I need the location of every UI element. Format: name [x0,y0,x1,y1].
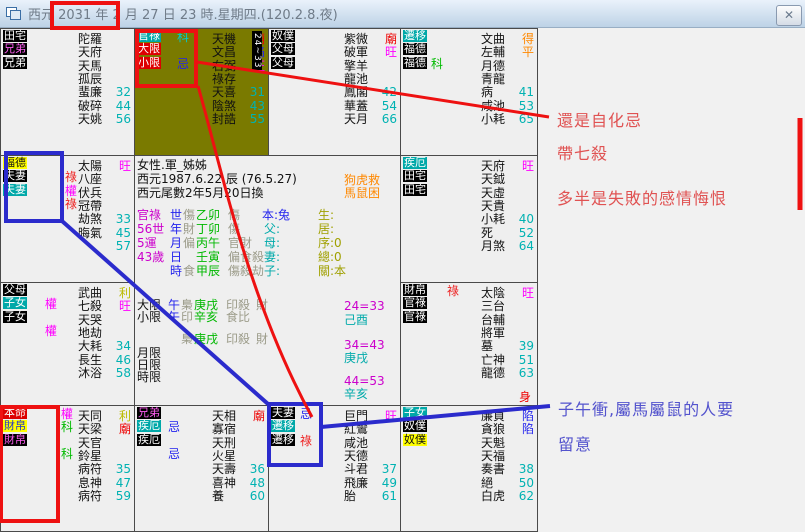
center-text-run: 庚戌 [194,333,218,346]
star-age-number: 56 [116,113,131,126]
star-name: 天喜 [212,86,236,99]
hua-mark-祿: 祿 [300,435,312,447]
palace-label: 官祿 [403,311,427,323]
star-row: 破軍旺 [344,46,397,59]
star-row: 咸池 [344,437,397,450]
title-bar: 西元 2031 年 2 月 27 日 23 時.星期四.(120.2.8.夜) … [0,0,805,28]
center-text-run: 辛亥 [344,388,368,401]
star-row: 火星 [212,450,265,463]
palace-label: 疾厄 [137,434,161,446]
star-name: 左輔 [481,46,505,59]
star-row: 天府 [78,46,131,59]
star-row: 武曲利 [78,287,131,300]
center-text-run: 序:0 [318,237,342,250]
palace-qianyi-top-right[interactable]: 遷移福德福德科文曲得左輔平月德青龍病41咸池53小耗65 [400,28,538,156]
center-text-run: 月 [170,237,182,250]
palace-label: 夫妻 [3,170,27,182]
star-row: 天貴 [481,200,534,213]
astrology-app-window: 西元 2031 年 2 月 27 日 23 時.星期四.(120.2.8.夜) … [0,0,805,532]
star-age-number: 36 [250,463,265,476]
hua-mark-祿: 祿 [447,285,459,297]
star-brightness: 廟 [119,423,131,436]
star-row: 胎61 [344,490,397,503]
palace-label: 子女 [3,311,27,323]
handwritten-note-red: 帶七殺 [557,140,608,164]
star-brightness: 廟 [253,410,265,423]
palace-label: 子女 [403,407,427,419]
star-name: 伏兵 [78,187,102,200]
star-age-number: 64 [519,240,534,253]
star-age-number: 59 [116,490,131,503]
center-text-run: 食比 [226,311,250,324]
star-row: 天魁 [481,437,534,450]
star-name: 天馬 [78,60,102,73]
star-age-number: 66 [382,113,397,126]
palace-jie-mid-right[interactable]: 疾厄田宅田宅天府旺天鉞天虛天貴小耗40死52月煞64 [400,155,538,283]
palace-label: 田宅 [403,170,427,182]
star-row: 七殺旺 [78,300,131,313]
star-age-number: 42 [382,86,397,99]
star-row: 封誥55 [212,113,265,126]
star-name: 擎羊 [344,60,368,73]
handwritten-note-blue: 留意 [558,431,592,455]
close-button[interactable]: ✕ [776,5,802,26]
palace-zinv-bottom-right[interactable]: 子女奴僕奴僕廉貞陷貪狼陷天魁天福奏書38絕50白虎62 [400,405,538,532]
star-row: 絕50 [481,477,534,490]
star-name: 三台 [481,300,505,313]
palace-caibo-lower-right[interactable]: 財帛官祿官祿祿太陰旺三台台輔將軍墓39亡神51龍德63身 [400,282,538,406]
center-text-run: 西元1987.6.22.辰 (76.5.27) [137,173,297,186]
palace-nupu-top[interactable]: 奴僕父母父母紫微廟破軍旺擎羊龍池鳳閣42華蓋54天月66 [268,28,401,156]
palace-label: 財帛 [3,420,27,432]
star-name: 台輔 [481,314,505,327]
star-row: 小耗65 [481,113,534,126]
star-name: 晦氣 [78,227,102,240]
star-name: 劫煞 [78,213,102,226]
star-row: 天府旺 [481,160,534,173]
hua-mark-權: 權 [61,408,73,420]
center-text-run: 母: [264,237,280,250]
star-age-number: 49 [382,477,397,490]
palace-label: 財帛 [403,284,427,296]
star-row: 破碎44 [78,100,131,113]
center-text-run: 財 [256,333,268,346]
star-age-number: 31 [250,86,265,99]
center-text-run: 56世 [137,223,164,236]
star-row: 青龍 [481,73,534,86]
star-brightness: 旺 [385,410,397,423]
star-row: 鈴星 [78,450,131,463]
center-text-run: 丙午 [196,237,220,250]
star-name: 死 [481,227,493,240]
center-text-run: 24=33 [344,300,385,313]
star-name: 陰煞 [212,100,236,113]
center-text-run: 傷殺劫 [228,265,264,278]
center-text-run: 印殺 [226,333,250,346]
star-name: 息神 [78,477,102,490]
star-brightness: 平 [522,46,534,59]
palace-label: 父母 [271,43,295,55]
center-text-run: 傷 [228,209,240,222]
star-name: 養 [212,490,224,503]
star-row: 陰煞43 [212,100,265,113]
star-row: 孤辰 [78,73,131,86]
palace-label: 遷移 [403,30,427,42]
star-name: 天府 [481,160,505,173]
palace-xiongdi-bottom-2[interactable]: 兄弟疾厄疾厄忌忌天相廟寡宿天刑火星天壽36喜神48養60 [134,405,269,532]
center-text-run: 食 [183,265,195,278]
palace-label: 奴僕 [403,434,427,446]
star-age-number: 44 [116,100,131,113]
star-row: 病符35 [78,463,131,476]
star-name: 天月 [344,113,368,126]
star-name: 冠帶 [78,200,102,213]
star-name: 青龍 [481,73,505,86]
hua-mark-祿: 祿 [65,171,77,183]
center-text-run: 印 [181,311,193,324]
star-name: 將軍 [481,327,505,340]
star-name: 紅鸞 [344,423,368,436]
star-row: 巨門旺 [344,410,397,423]
star-row: 天喜31 [212,86,265,99]
star-age-number: 40 [519,213,534,226]
star-name: 寡宿 [212,423,236,436]
star-age-number: 39 [519,340,534,353]
star-age-number: 51 [519,354,534,367]
star-name: 沐浴 [78,367,102,380]
star-age-number: 46 [116,354,131,367]
hua-mark-忌: 忌 [300,408,312,420]
star-name: 天福 [481,450,505,463]
star-age-number: 65 [519,113,534,126]
center-text-run: 小限 [137,311,161,324]
star-row: 晦氣45 [78,227,131,240]
star-brightness: 旺 [119,160,131,173]
center-text-run: 女性.軍_姊姊 [137,159,207,172]
palace-label: 父母 [3,284,27,296]
star-row: 寡宿 [212,423,265,436]
star-age-number: 32 [116,86,131,99]
palace-tianzhai-top-left[interactable]: 田宅兄弟兄弟陀羅天府天馬孤辰蜚廉32破碎44天姚56 [0,28,135,156]
star-name: 天刑 [212,437,236,450]
hua-mark-忌: 忌 [168,421,180,433]
center-text-run: 辛亥 [194,311,218,324]
star-name: 天梁 [78,423,102,436]
star-name: 巨門 [344,410,368,423]
center-text-run: 傷 [228,223,240,236]
star-name: 天官 [78,437,102,450]
star-row: 擎羊 [344,60,397,73]
palace-label: 財帛 [3,434,27,446]
star-row: 左輔平 [481,46,534,59]
star-row: 台輔 [481,314,534,327]
star-age-number: 52 [519,227,534,240]
star-age-number: 38 [519,463,534,476]
star-row: 養60 [212,490,265,503]
star-name: 華蓋 [344,100,368,113]
star-name: 鳳閣 [344,86,368,99]
center-text-run: 傷 [183,209,195,222]
star-name: 病 [481,86,493,99]
center-text-run: 梟 [181,333,193,346]
handwritten-note-red: 多半是失敗的感情悔恨 [557,185,727,209]
palace-label: 兄弟 [3,43,27,55]
star-brightness: 旺 [119,300,131,313]
star-row: 喜神48 [212,477,265,490]
star-name: 墓 [481,340,493,353]
hua-mark-忌: 忌 [177,58,189,70]
star-row: 蜚廉32 [78,86,131,99]
star-row: 華蓋54 [344,100,397,113]
center-text-run: 43歲 [137,251,164,264]
star-name: 貪狼 [481,423,505,436]
star-name: 病符 [78,463,102,476]
palace-label: 父母 [271,57,295,69]
body-palace-marker: 身 [519,391,531,403]
center-text-run: 庚戌 [344,352,368,365]
star-name: 祿存 [212,73,236,86]
star-brightness: 得 [522,33,534,46]
star-brightness: 旺 [522,287,534,300]
star-row: 冠帶 [78,200,131,213]
star-row: 墓39 [481,340,534,353]
center-text-run: 財 [256,299,268,312]
close-icon: ✕ [784,8,794,22]
star-row: 天壽36 [212,463,265,476]
center-text-run: 馬鼠困 [344,187,380,200]
palace-label: 子女 [3,297,27,309]
center-text-run: 生: [318,209,334,222]
palace-label: 遷移 [271,434,295,446]
star-name: 大耗 [78,340,102,353]
palace-label: 福德 [403,57,427,69]
star-row: 亡神51 [481,354,534,367]
palace-fumu-lower-left[interactable]: 父母子女子女權權武曲利七殺旺天哭地劫大耗34長生46沐浴58 [0,282,135,406]
palace-label: 奴僕 [271,30,295,42]
star-row: 病符59 [78,490,131,503]
palace-label: 本命 [3,407,27,419]
star-row: 龍池 [344,73,397,86]
star-row: 死52 [481,227,534,240]
palace-fuqi-bottom-3[interactable]: 夫妻遷移遷移忌祿巨門旺紅鸞咸池天德斗君37飛廉49胎61 [268,405,401,532]
center-text-run: 居: [318,223,334,236]
star-row: 57 [78,240,131,253]
star-brightness: 旺 [385,46,397,59]
star-name: 封誥 [212,113,236,126]
star-name: 長生 [78,354,102,367]
palace-label: 小限 [137,57,161,69]
star-name: 奏書 [481,463,505,476]
star-age-number: 47 [116,477,131,490]
hua-mark-忌: 忌 [168,448,180,460]
palace-label: 田宅 [403,184,427,196]
center-text-run: 壬寅 [196,251,220,264]
star-name: 火星 [212,450,236,463]
center-text-run: 父: [264,223,280,236]
palace-label: 官祿 [137,30,161,42]
star-name: 天貴 [481,200,505,213]
star-row: 奏書38 [481,463,534,476]
center-text-run: 子: [264,265,280,278]
star-name: 天哭 [78,314,102,327]
star-name: 絕 [481,477,493,490]
star-row: 天德 [344,450,397,463]
star-age-number: 43 [250,100,265,113]
star-name: 八座 [78,173,102,186]
star-row: 八座 [78,173,131,186]
star-row: 將軍 [481,327,534,340]
star-age-number: 37 [382,463,397,476]
hua-mark-科: 科 [61,448,73,460]
star-name: 天府 [78,46,102,59]
center-text-run: 5運 [137,237,157,250]
star-age-number: 62 [519,490,534,503]
star-name: 破碎 [78,100,102,113]
star-name: 天德 [344,450,368,463]
hua-mark-科: 科 [177,31,189,43]
star-row: 大耗34 [78,340,131,353]
star-name: 斗君 [344,463,368,476]
palace-label: 福德 [403,43,427,55]
star-age-number: 60 [250,490,265,503]
star-row: 鳳閣42 [344,86,397,99]
star-name: 天鉞 [481,173,505,186]
star-row: 天哭 [78,314,131,327]
star-row: 飛廉49 [344,477,397,490]
center-text-run: 財 [183,223,195,236]
center-text-run: 乙卯 [196,209,220,222]
palace-label: 奴僕 [403,420,427,432]
star-row: 天姚56 [78,113,131,126]
star-age-number: 63 [519,367,534,380]
star-row: 白虎62 [481,490,534,503]
palace-label: 田宅 [3,30,27,42]
star-name: 胎 [344,490,356,503]
center-text-run: 時 [170,265,182,278]
palace-label: 遷移 [271,420,295,432]
star-row: 息神47 [78,477,131,490]
center-text-run: 午 [168,311,180,324]
palace-label: 兄弟 [137,407,161,419]
center-text-run: 丁卯 [196,223,220,236]
star-name: 天姚 [78,113,102,126]
center-text-run: 偏 [183,237,195,250]
hua-mark-科: 科 [431,58,443,70]
palace-label: 福德 [3,157,27,169]
palace-label: 官祿 [403,297,427,309]
star-age-number: 58 [116,367,131,380]
star-age-number: 34 [116,340,131,353]
star-row: 地劫 [78,327,131,340]
star-row: 劫煞33 [78,213,131,226]
star-age-number: 61 [382,490,397,503]
star-name: 天虛 [481,187,505,200]
handwritten-note-blue: 子午衝,屬馬屬鼠的人要 [558,396,734,420]
hua-mark-權: 權 [45,325,57,337]
star-name: 破軍 [344,46,368,59]
star-row: 天梁廟 [78,423,131,436]
star-name: 武曲 [78,287,102,300]
center-text-run: 偏食殺 [228,251,264,264]
star-row: 沐浴58 [78,367,131,380]
star-name: 喜神 [212,477,236,490]
star-row: 天鉞 [481,173,534,186]
star-row: 貪狼陷 [481,423,534,436]
star-name: 右弼 [212,60,236,73]
star-name: 白虎 [481,490,505,503]
star-name: 龍池 [344,73,368,86]
center-text-run: 甲辰 [196,265,220,278]
palace-fude-mid-left[interactable]: 福德夫妻夫妻祿權祿太陽旺八座伏兵冠帶劫煞33晦氣4557 [0,155,135,283]
star-age-number: 53 [519,100,534,113]
center-text-run: 妻: [264,251,280,264]
center-text-run: 本:兔 [262,209,290,222]
star-age-number: 54 [382,100,397,113]
star-name: 小耗 [481,213,505,226]
star-name: 七殺 [78,300,102,313]
star-name: 月煞 [481,240,505,253]
star-name: 飛廉 [344,477,368,490]
window-icon [6,7,21,20]
center-text-run: 年 [170,223,182,236]
center-text-run: 官祿 [137,209,161,222]
star-row: 月煞64 [481,240,534,253]
palace-guanlu-daxian[interactable]: 官祿大限小限科忌天機廟文昌陷右弼旺祿存天喜31陰煞43封誥5524~33 [134,28,269,156]
center-text-run: 西元尾數2年5月20日換 [137,187,264,200]
center-text-run: 總:0 [318,251,342,264]
center-text-run: 時限 [137,371,161,384]
star-age-number: 41 [519,86,534,99]
palace-label: 疾厄 [137,420,161,432]
center-text-run: 世 [170,209,182,222]
star-brightness: 陷 [522,423,534,436]
star-age-number: 48 [250,477,265,490]
star-row: 天馬 [78,60,131,73]
star-brightness: 旺 [522,160,534,173]
star-row: 月德 [481,60,534,73]
palace-label: 疾厄 [403,157,427,169]
palace-label: 大限 [137,43,161,55]
center-text-run: 官財 [228,237,252,250]
handwritten-note-red: 還是自化忌 [557,107,642,131]
star-name: 天魁 [481,437,505,450]
center-text-run: 日 [170,251,182,264]
star-age-number: 35 [116,463,131,476]
star-row: 斗君37 [344,463,397,476]
palace-label: 夫妻 [3,184,27,196]
star-name: 地劫 [78,327,102,340]
star-row: 病41 [481,86,534,99]
star-name: 月德 [481,60,505,73]
star-name: 亡神 [481,354,505,367]
window-title: 西元 2031 年 2 月 27 日 23 時.星期四.(120.2.8.夜) [28,4,338,23]
hua-mark-祿: 祿 [65,198,77,210]
palace-benming-bottom-left[interactable]: 本命財帛財帛權科科天同利天梁廟天官鈴星病符35息神47病符59 [0,405,135,532]
star-name: 小耗 [481,113,505,126]
palace-label: 夫妻 [271,407,295,419]
star-brightness: 利 [119,287,131,300]
star-name: 文昌 [212,46,236,59]
center-text-run: 己酉 [344,314,368,327]
star-age-number: 45 [116,227,131,240]
star-age-number: 57 [116,240,131,253]
hua-mark-權: 權 [45,298,57,310]
center-text-run: 關:本 [318,265,346,278]
star-row: 天福 [481,450,534,463]
hua-mark-權: 權 [65,185,77,197]
star-name: 病符 [78,490,102,503]
star-row: 紅鸞 [344,423,397,436]
